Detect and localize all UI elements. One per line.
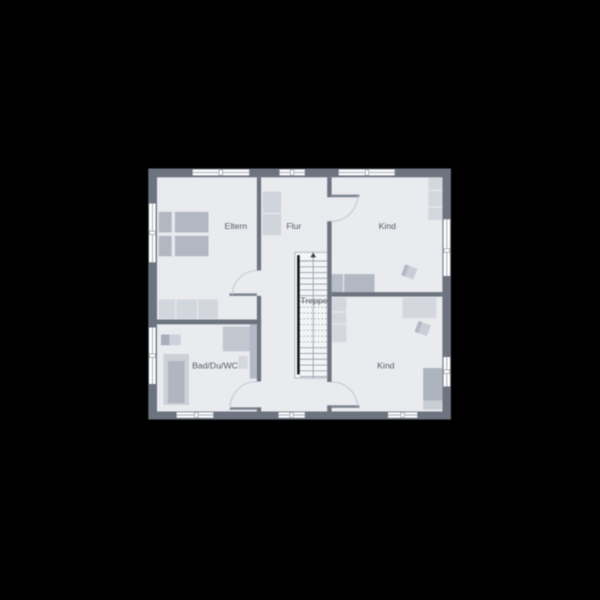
svg-text:Treppe: Treppe — [300, 296, 327, 306]
svg-text:Flur: Flur — [286, 221, 301, 231]
svg-text:Bad/Du/WC: Bad/Du/WC — [192, 360, 238, 370]
svg-text:Kind: Kind — [377, 360, 395, 370]
svg-text:Eltern: Eltern — [225, 221, 248, 231]
svg-text:Kind: Kind — [379, 221, 397, 231]
